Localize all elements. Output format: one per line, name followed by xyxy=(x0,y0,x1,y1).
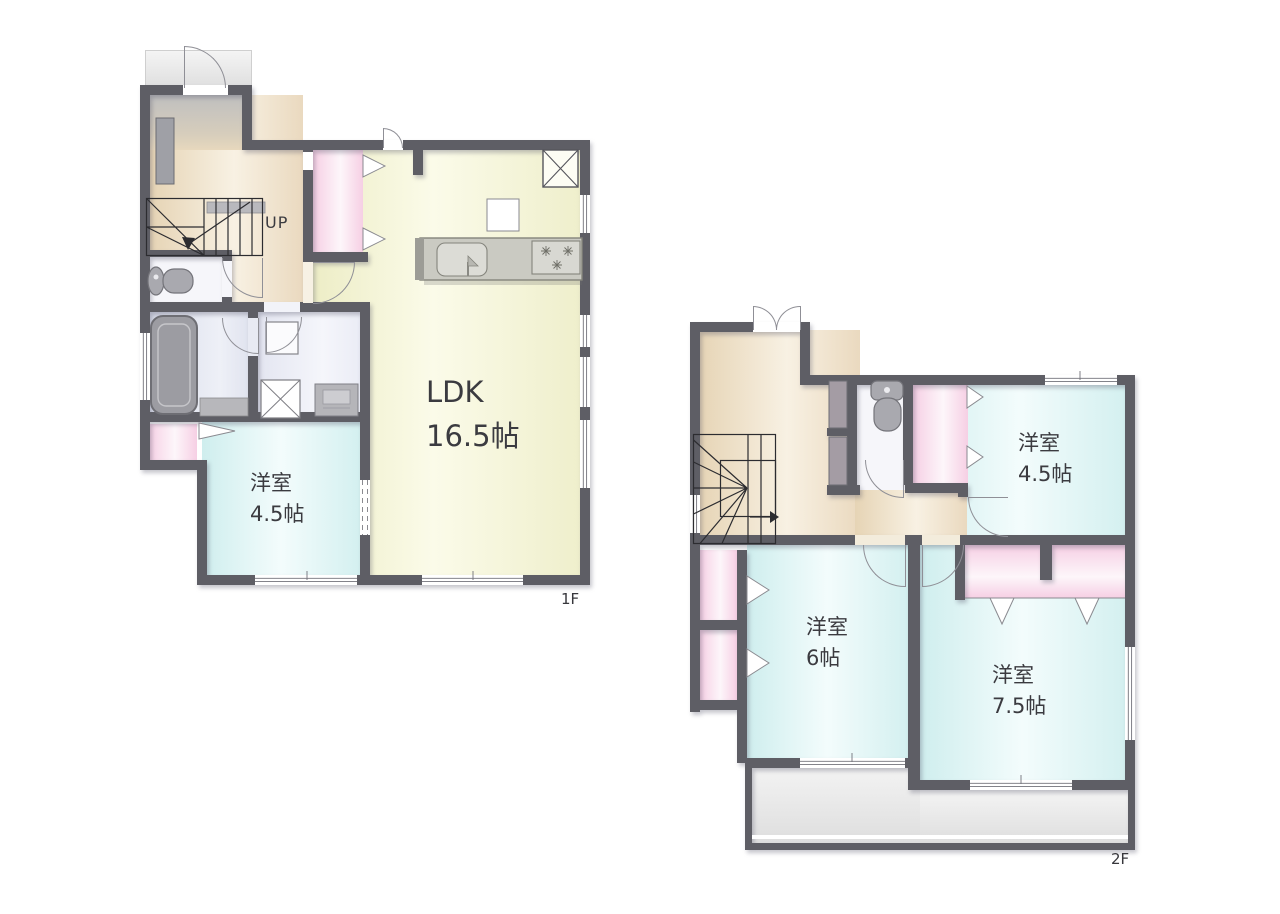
washroom-door-leaf xyxy=(266,317,267,353)
hall-2f-window-leaf-right xyxy=(800,306,801,330)
bedroom-c-door-leaf xyxy=(922,545,923,587)
stairs-up-label: UP xyxy=(265,213,288,232)
hall-to-ldk-door-leaf xyxy=(313,262,355,263)
ldk-north-door-leaf xyxy=(383,128,384,148)
bedroom-1f-label: 洋室 4.5帖 xyxy=(250,468,304,530)
bathroom-door-leaf xyxy=(258,318,259,354)
kitchen-counter-icon xyxy=(415,238,582,285)
ldk-label: LDK 16.5帖 xyxy=(426,370,520,458)
floorplan-canvas: LDK 16.5帖 洋室 4.5帖 UP 1F 洋室 4.5帖 洋室 6帖 洋室… xyxy=(0,0,1280,914)
toilet-2f-door-leaf xyxy=(903,460,904,498)
washing-machine-space-icon xyxy=(261,380,300,418)
stairs-2f xyxy=(694,435,780,544)
vector-layer xyxy=(0,0,1280,914)
bedroom-b-door-leaf xyxy=(905,545,906,587)
vanity-icon xyxy=(315,384,358,416)
ldk-size: 16.5帖 xyxy=(426,414,520,458)
floor-tag-1f: 1F xyxy=(561,590,579,608)
balcony-railing xyxy=(752,835,1128,839)
refrigerator-space-icon xyxy=(543,150,578,187)
entry-door-leaf xyxy=(184,46,185,88)
shoe-cabinet-icon xyxy=(156,118,174,184)
stairs-1f xyxy=(147,199,266,256)
bedroom-a-label: 洋室 4.5帖 xyxy=(1018,428,1072,490)
bedroom-a-door-leaf xyxy=(968,497,1008,498)
bedroom-c-label: 洋室 7.5帖 xyxy=(992,660,1046,722)
toilet-icon-1f xyxy=(148,267,193,295)
toilet-1f-door-leaf xyxy=(262,258,263,298)
ldk-name: LDK xyxy=(426,370,520,414)
floor-tag-2f: 2F xyxy=(1111,850,1129,868)
toilet-icon-2f xyxy=(871,381,903,431)
bedroom-b-label: 洋室 6帖 xyxy=(806,612,848,674)
dining-table-icon xyxy=(487,199,519,231)
hall-2f-window-leaf-left xyxy=(753,306,754,330)
